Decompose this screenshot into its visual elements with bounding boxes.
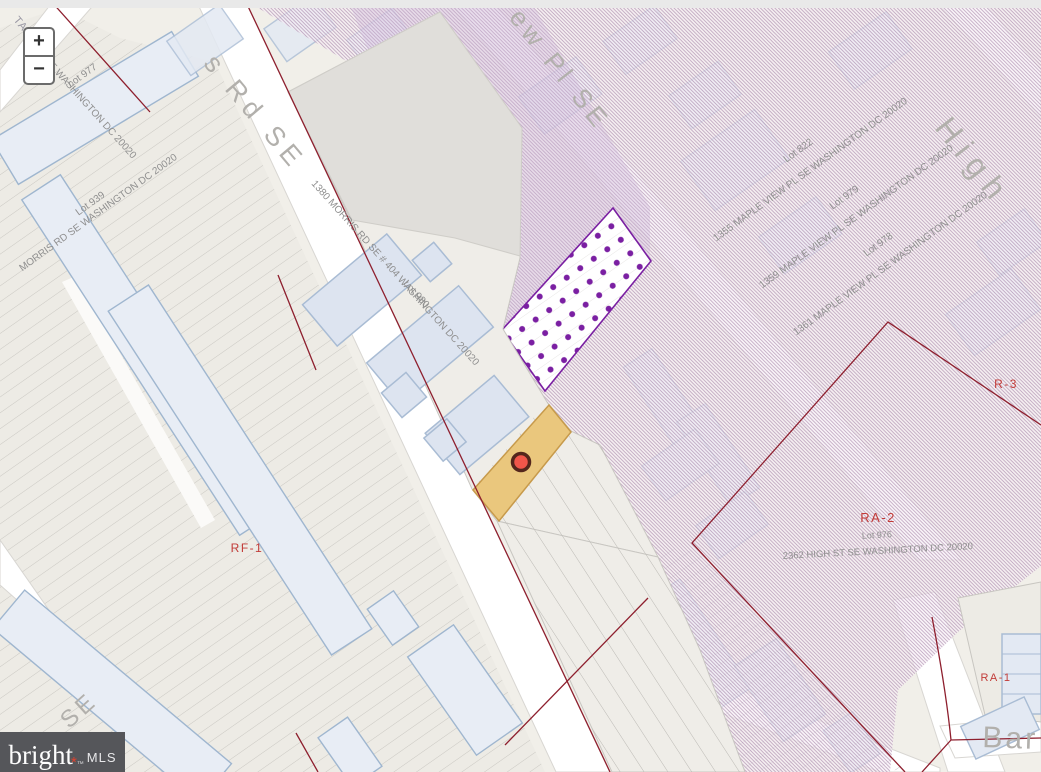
top-edge-strip [0, 0, 1041, 8]
street-label-barry: Bar [982, 721, 1039, 756]
logo-suffix-text: MLS [87, 750, 117, 765]
zone-label-rf1: RF-1 [231, 541, 264, 555]
lot-label: Lot 976 [862, 529, 893, 541]
map-canvas[interactable]: s Rd SE ew Pl SE High Bar SE TA Lot 977 … [0, 0, 1041, 772]
subject-property-marker[interactable] [513, 454, 530, 471]
logo-tm-mark: ™ [77, 761, 84, 768]
map-zoom-control: + − [23, 27, 55, 85]
zone-label-ra2: RA-2 [860, 510, 896, 525]
map-viewport[interactable]: s Rd SE ew Pl SE High Bar SE TA Lot 977 … [0, 0, 1041, 772]
bright-mls-logo: bright*™MLS [0, 732, 125, 772]
logo-brand-text: bright [8, 742, 73, 768]
zone-label-ra1: RA-1 [980, 672, 1011, 684]
zoom-in-button[interactable]: + [23, 27, 55, 57]
zoom-out-button[interactable]: − [23, 55, 55, 85]
zone-label-r3: R-3 [994, 377, 1018, 391]
